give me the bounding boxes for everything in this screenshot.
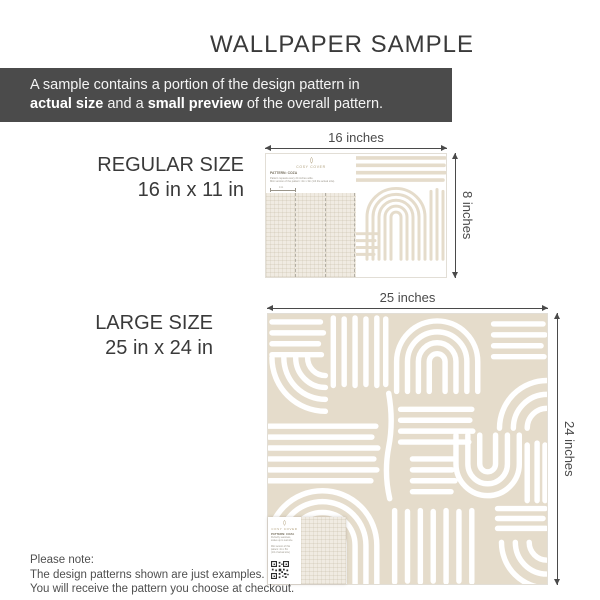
brand-name: COSY COVER bbox=[296, 165, 326, 169]
pattern-note-5: (1/4 of actual size) bbox=[271, 552, 290, 554]
pattern-note-2: Mini version of the pattern: 4in x 3in (… bbox=[270, 180, 335, 183]
large-width-arrow bbox=[267, 308, 548, 309]
large-height-dimension: 24 inches bbox=[557, 313, 577, 585]
info-banner: A sample contains a portion of the desig… bbox=[0, 68, 452, 122]
banner-line-2: actual size and a small preview of the o… bbox=[30, 95, 452, 115]
mini-ruler: 4 in bbox=[270, 188, 296, 191]
large-height-dimension-label: 24 inches bbox=[562, 421, 577, 477]
fold-line-1 bbox=[295, 193, 296, 277]
fold-line-2 bbox=[325, 193, 326, 277]
regular-card-logo-row: COSY COVER bbox=[266, 154, 356, 169]
regular-height-dimension-label: 8 inches bbox=[460, 191, 475, 239]
wallpaper-sample-infographic: WALLPAPER SAMPLE A sample contains a por… bbox=[0, 0, 600, 600]
large-width-dimension-label: 25 inches bbox=[380, 290, 436, 305]
brand-name: COSY COVER bbox=[271, 527, 297, 531]
banner-bold-actual-size: actual size bbox=[30, 96, 103, 112]
page-title: WALLPAPER SAMPLE bbox=[192, 31, 492, 59]
footnote-line-3: You will receive the pattern you choose … bbox=[30, 582, 294, 597]
large-size-label: LARGE SIZE 25 in x 24 in bbox=[30, 311, 213, 361]
regular-width-arrow bbox=[265, 148, 447, 149]
regular-preview-texture bbox=[266, 193, 356, 277]
regular-size-title: REGULAR SIZE bbox=[60, 153, 244, 178]
large-card-logo-row: COSY COVER bbox=[268, 517, 301, 531]
large-height-arrow bbox=[557, 313, 558, 585]
pattern-note-4: pattern: 4in x 5in bbox=[271, 549, 288, 551]
footnote-line-1: Please note: bbox=[30, 553, 294, 568]
banner-tail-text: of the overall pattern. bbox=[243, 96, 383, 112]
regular-size-label: REGULAR SIZE 16 in x 11 in bbox=[60, 153, 244, 203]
footnote-line-2: The design patterns shown are just examp… bbox=[30, 568, 294, 583]
brand-leaf-icon bbox=[282, 520, 287, 526]
regular-height-arrow bbox=[455, 153, 456, 278]
banner-text-1: A sample contains a portion of the desig… bbox=[30, 77, 360, 93]
pattern-name-label: PATTERN: COZA bbox=[271, 532, 294, 536]
regular-sample-image: COSY COVER PATTERN: COZA Pattern repeats… bbox=[265, 153, 447, 278]
pattern-note-3: Mini version of this bbox=[271, 546, 290, 548]
large-sample-card: COSY COVER PATTERN: COZA Perfectly seaml… bbox=[268, 517, 346, 584]
regular-height-dimension: 8 inches bbox=[455, 153, 475, 278]
regular-top-stripes bbox=[356, 158, 445, 180]
large-size-dimensions: 25 in x 24 in bbox=[30, 336, 213, 361]
brand-leaf-icon bbox=[309, 157, 314, 164]
mini-ruler-label: 4 in bbox=[279, 186, 283, 189]
regular-size-dimensions: 16 in x 11 in bbox=[60, 178, 244, 203]
qr-code bbox=[271, 561, 289, 579]
banner-line-1: A sample contains a portion of the desig… bbox=[30, 76, 452, 96]
mini-ruler-line bbox=[270, 190, 296, 191]
banner-bold-small-preview: small preview bbox=[148, 96, 243, 112]
pattern-note-1: Perfectly seamless, bbox=[271, 537, 291, 539]
regular-width-dimension-label: 16 inches bbox=[328, 130, 384, 145]
large-size-title: LARGE SIZE bbox=[30, 311, 213, 336]
large-card-text-column: COSY COVER PATTERN: COZA Perfectly seaml… bbox=[268, 517, 301, 584]
pattern-note-2: scales up to real size. bbox=[271, 540, 293, 542]
large-sample-image: COSY COVER PATTERN: COZA Perfectly seaml… bbox=[267, 313, 548, 585]
banner-mid-text: and a bbox=[103, 96, 147, 112]
fold-line-3 bbox=[354, 193, 355, 277]
large-width-dimension: 25 inches bbox=[267, 290, 548, 309]
regular-pattern-art bbox=[355, 154, 446, 277]
large-card-preview-texture bbox=[301, 517, 346, 584]
pattern-name-label: PATTERN: COZA bbox=[270, 171, 297, 175]
regular-width-dimension: 16 inches bbox=[265, 130, 447, 149]
footnote: Please note: The design patterns shown a… bbox=[30, 553, 294, 597]
